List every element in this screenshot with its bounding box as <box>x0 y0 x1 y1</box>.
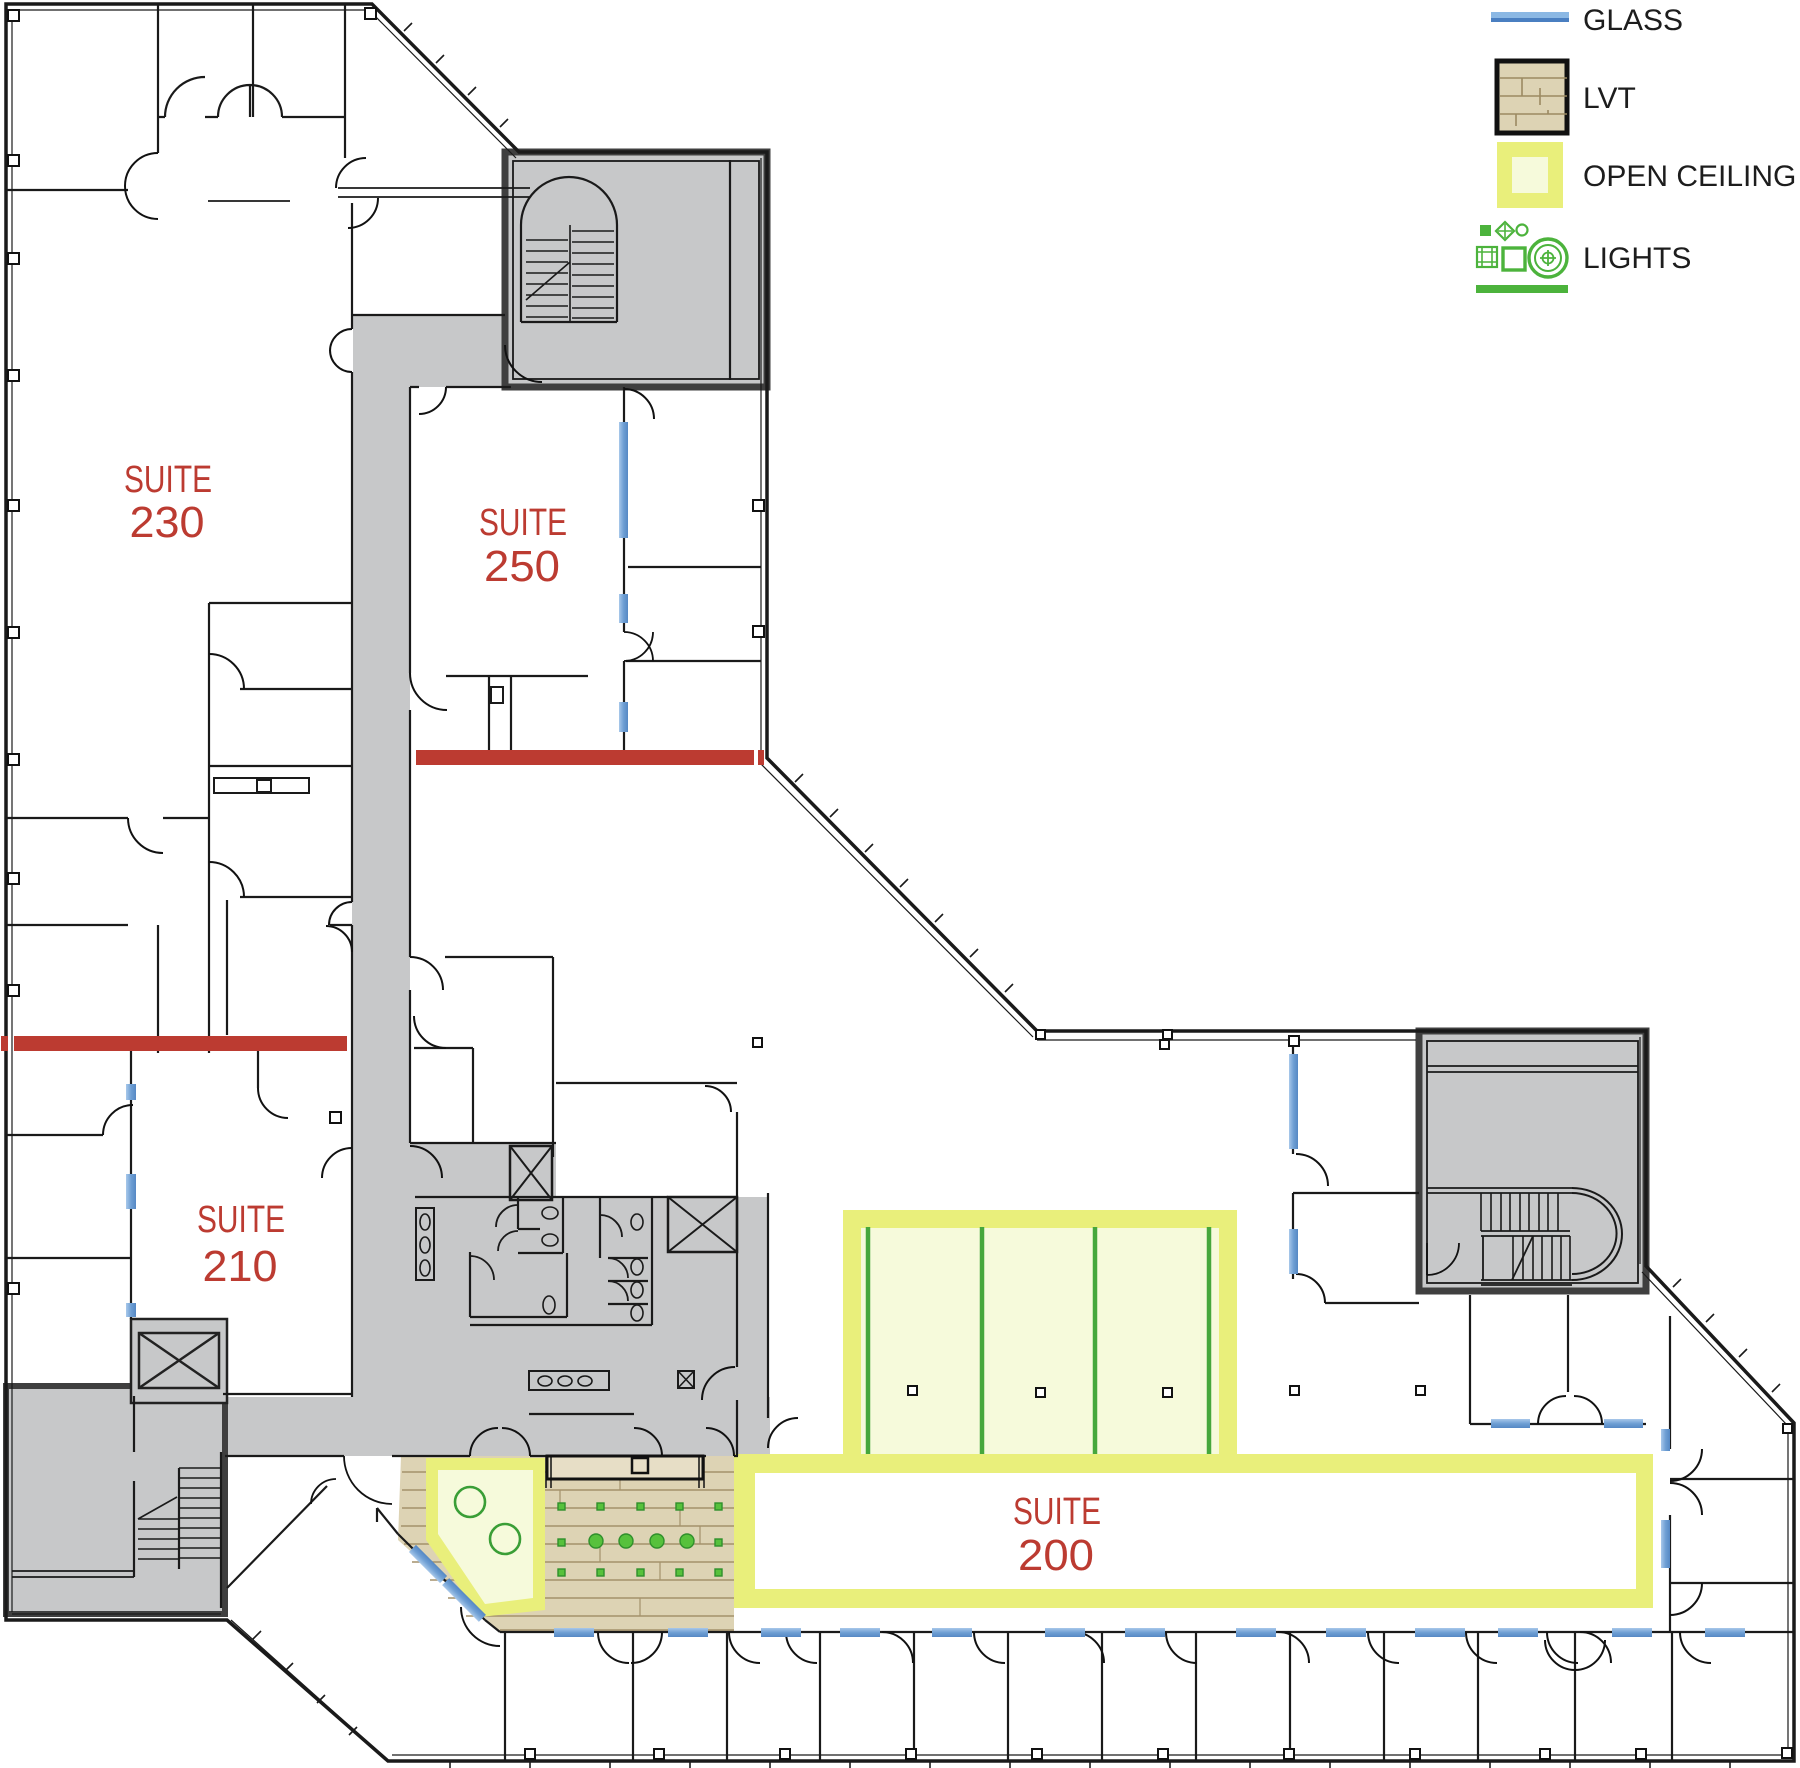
svg-text:SUITE: SUITE <box>124 459 212 501</box>
svg-text:LVT: LVT <box>1583 82 1636 115</box>
svg-text:GLASS: GLASS <box>1583 4 1683 37</box>
svg-text:250: 250 <box>484 542 560 591</box>
svg-text:230: 230 <box>130 498 205 547</box>
svg-text:200: 200 <box>1018 1531 1094 1580</box>
svg-text:SUITE: SUITE <box>197 1199 285 1241</box>
svg-text:210: 210 <box>203 1242 278 1291</box>
svg-text:LIGHTS: LIGHTS <box>1583 242 1691 275</box>
svg-text:SUITE: SUITE <box>479 502 567 544</box>
svg-text:SUITE: SUITE <box>1013 1491 1101 1533</box>
svg-text:OPEN CEILING: OPEN CEILING <box>1583 160 1796 193</box>
